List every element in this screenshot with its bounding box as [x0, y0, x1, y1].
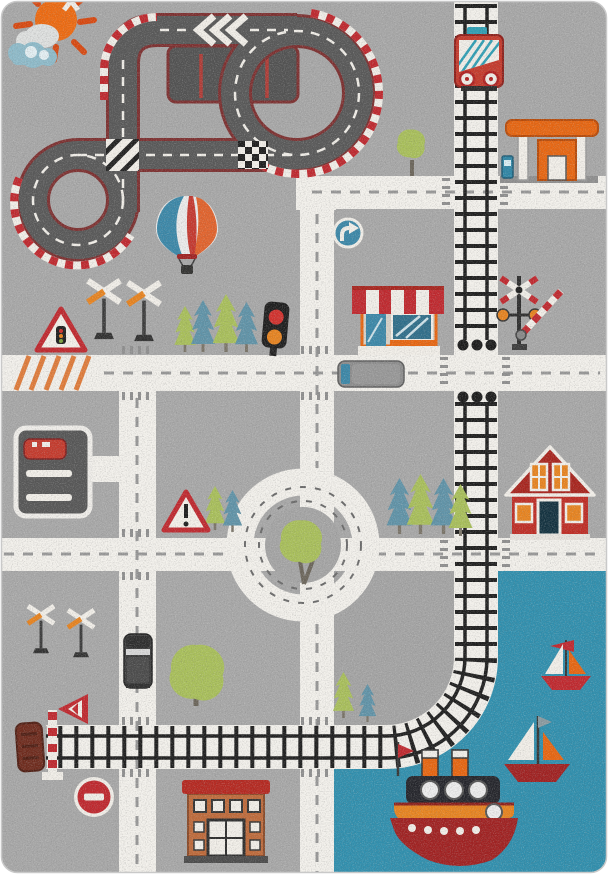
- play-rug-photo: Children's city roads play rug Harbour w…: [0, 0, 608, 879]
- carpet-grain-light: [0, 0, 608, 879]
